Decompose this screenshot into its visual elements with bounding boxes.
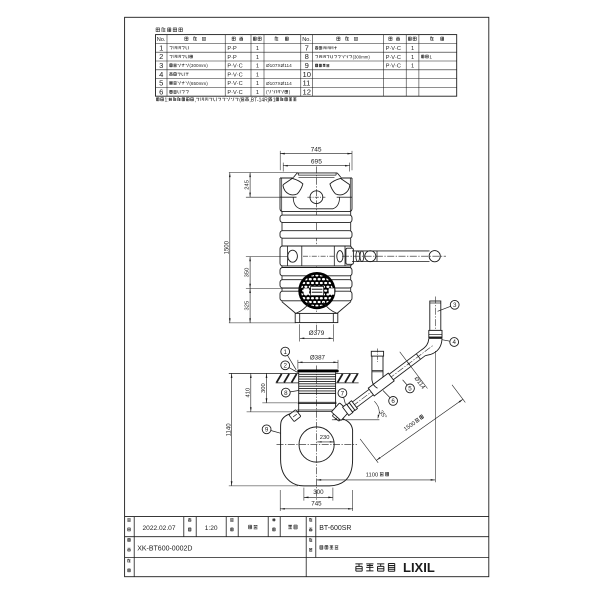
- svg-text:300: 300: [313, 489, 324, 496]
- svg-text:745: 745: [311, 501, 322, 508]
- svg-text:6: 6: [159, 87, 163, 96]
- svg-text:2: 2: [159, 52, 163, 61]
- svg-text:P·V·C: P·V·C: [227, 64, 242, 70]
- svg-text:1: 1: [159, 43, 163, 52]
- svg-text:325: 325: [245, 301, 251, 311]
- svg-text:410: 410: [245, 388, 251, 398]
- svg-text:P·V·C: P·V·C: [227, 72, 242, 78]
- svg-text:P·V·C: P·V·C: [386, 46, 401, 52]
- svg-text:8: 8: [305, 52, 309, 61]
- svg-text:6: 6: [391, 398, 395, 405]
- svg-text:1500: 1500: [225, 240, 231, 254]
- svg-text:12: 12: [303, 87, 311, 96]
- svg-text:5: 5: [408, 386, 412, 393]
- svg-text:Ø107XØ114: Ø107XØ114: [266, 63, 292, 68]
- svg-text:3: 3: [159, 61, 163, 70]
- svg-text:1: 1: [283, 349, 287, 356]
- svg-text:1: 1: [273, 97, 276, 103]
- svg-text:,: ,: [194, 97, 195, 103]
- svg-text:9: 9: [265, 427, 269, 434]
- svg-text:11: 11: [303, 79, 311, 88]
- svg-text:P·P: P·P: [227, 55, 237, 61]
- svg-text:P·V·C: P·V·C: [227, 90, 242, 96]
- svg-text:350: 350: [245, 268, 251, 278]
- svg-text:,BT-14R): ,BT-14R): [249, 97, 269, 103]
- svg-text:4: 4: [452, 339, 456, 346]
- svg-text:7: 7: [341, 390, 345, 397]
- svg-text:8: 8: [284, 390, 288, 397]
- svg-text:1: 1: [256, 90, 259, 96]
- svg-text:(300mm): (300mm): [189, 63, 208, 68]
- svg-text:P·V·C: P·V·C: [227, 81, 242, 87]
- svg-text:230: 230: [320, 435, 330, 441]
- svg-text:5: 5: [159, 79, 163, 88]
- svg-text:No.: No.: [302, 37, 311, 43]
- svg-text:1: 1: [256, 46, 259, 52]
- svg-text:1:: 1:: [165, 97, 169, 103]
- svg-text:Ø379: Ø379: [309, 330, 325, 337]
- svg-text:1:20: 1:20: [205, 525, 218, 532]
- svg-text:1: 1: [256, 55, 259, 61]
- svg-text:(650mm): (650mm): [189, 81, 208, 86]
- svg-text:9: 9: [305, 61, 309, 70]
- svg-text:Ø387: Ø387: [310, 354, 326, 361]
- svg-text:1: 1: [429, 54, 432, 59]
- svg-text:245: 245: [245, 180, 251, 190]
- svg-text:No.: No.: [157, 37, 166, 43]
- svg-text:1100: 1100: [366, 472, 378, 478]
- svg-text:4: 4: [159, 70, 163, 79]
- svg-text:BT-600SR: BT-600SR: [319, 525, 351, 532]
- svg-text:1: 1: [256, 64, 259, 70]
- svg-text:10: 10: [303, 70, 311, 79]
- svg-text:745: 745: [311, 146, 322, 153]
- svg-text:Ø107XØ114: Ø107XØ114: [266, 81, 292, 86]
- svg-text:1: 1: [411, 46, 414, 52]
- svg-text:XK-BT600-0002D: XK-BT600-0002D: [137, 545, 192, 552]
- svg-text:1: 1: [256, 72, 259, 78]
- svg-text:3: 3: [453, 302, 457, 309]
- svg-text:2022.02.07: 2022.02.07: [142, 525, 175, 532]
- svg-text:P·V·C: P·V·C: [386, 55, 401, 61]
- svg-text:1: 1: [256, 81, 259, 87]
- svg-text:2: 2: [283, 363, 287, 370]
- svg-text:695: 695: [311, 159, 322, 166]
- svg-text:P·P: P·P: [227, 46, 237, 52]
- svg-text:(300mm): (300mm): [353, 54, 371, 59]
- svg-text:LIXIL: LIXIL: [403, 560, 435, 575]
- svg-text:300: 300: [261, 383, 267, 393]
- svg-text:1140: 1140: [226, 423, 232, 437]
- svg-text:1: 1: [411, 55, 414, 61]
- svg-text:P·V·C: P·V·C: [386, 64, 401, 70]
- svg-text:7: 7: [305, 43, 309, 52]
- svg-text:1: 1: [411, 64, 414, 70]
